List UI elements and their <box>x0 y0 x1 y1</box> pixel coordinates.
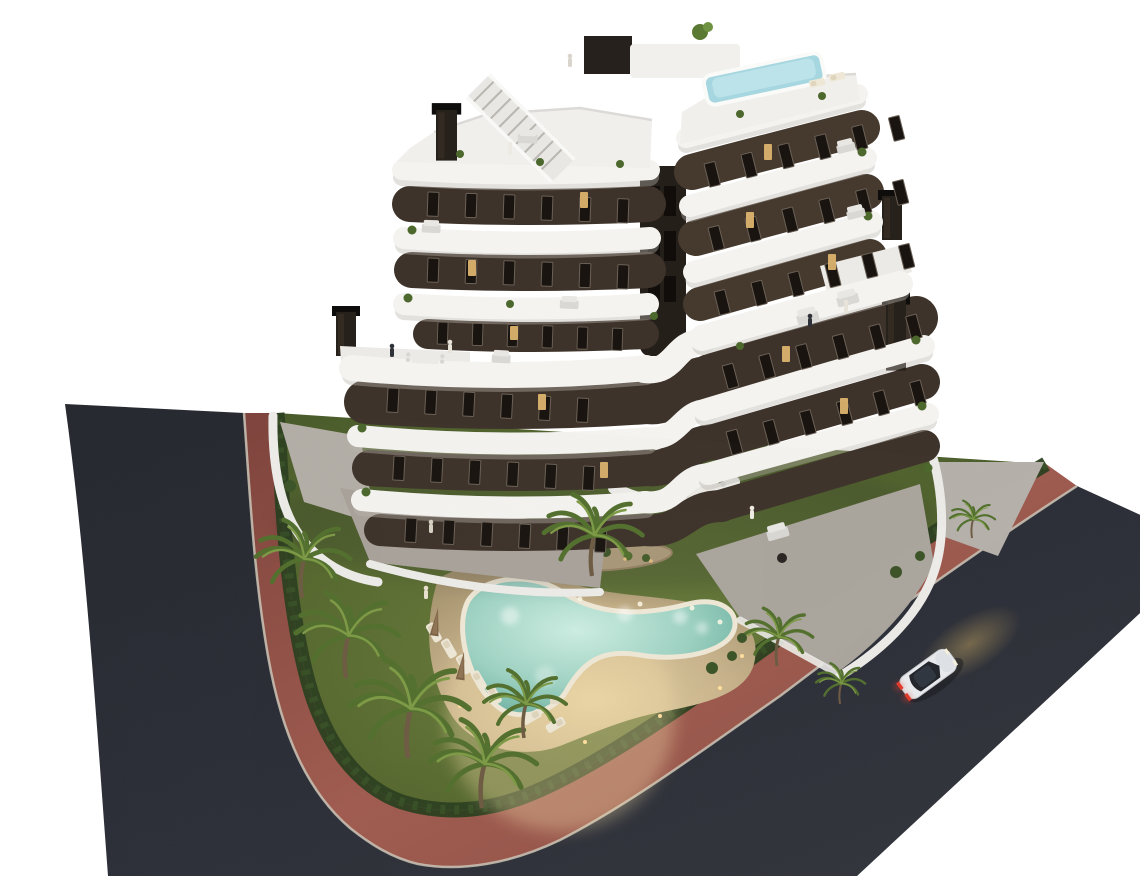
roof-dark-block <box>584 36 632 74</box>
architectural-render <box>40 16 1140 876</box>
